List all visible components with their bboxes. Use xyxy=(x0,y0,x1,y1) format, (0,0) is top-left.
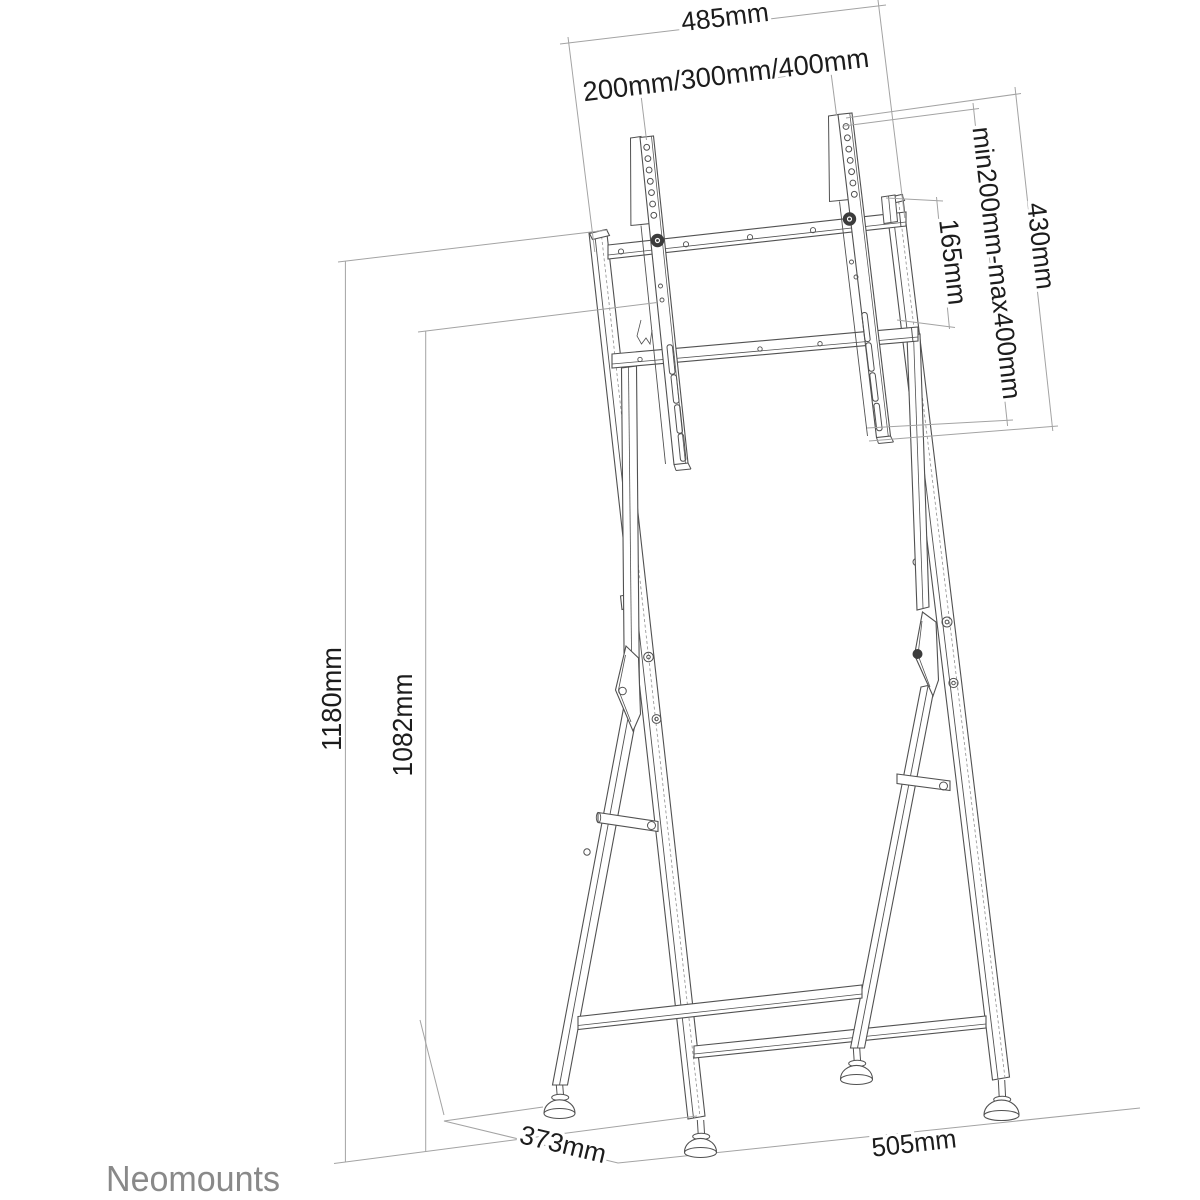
svg-text:Neomounts: Neomounts xyxy=(106,1158,280,1199)
svg-text:1082mm: 1082mm xyxy=(387,674,418,777)
svg-text:1180mm: 1180mm xyxy=(316,647,347,751)
